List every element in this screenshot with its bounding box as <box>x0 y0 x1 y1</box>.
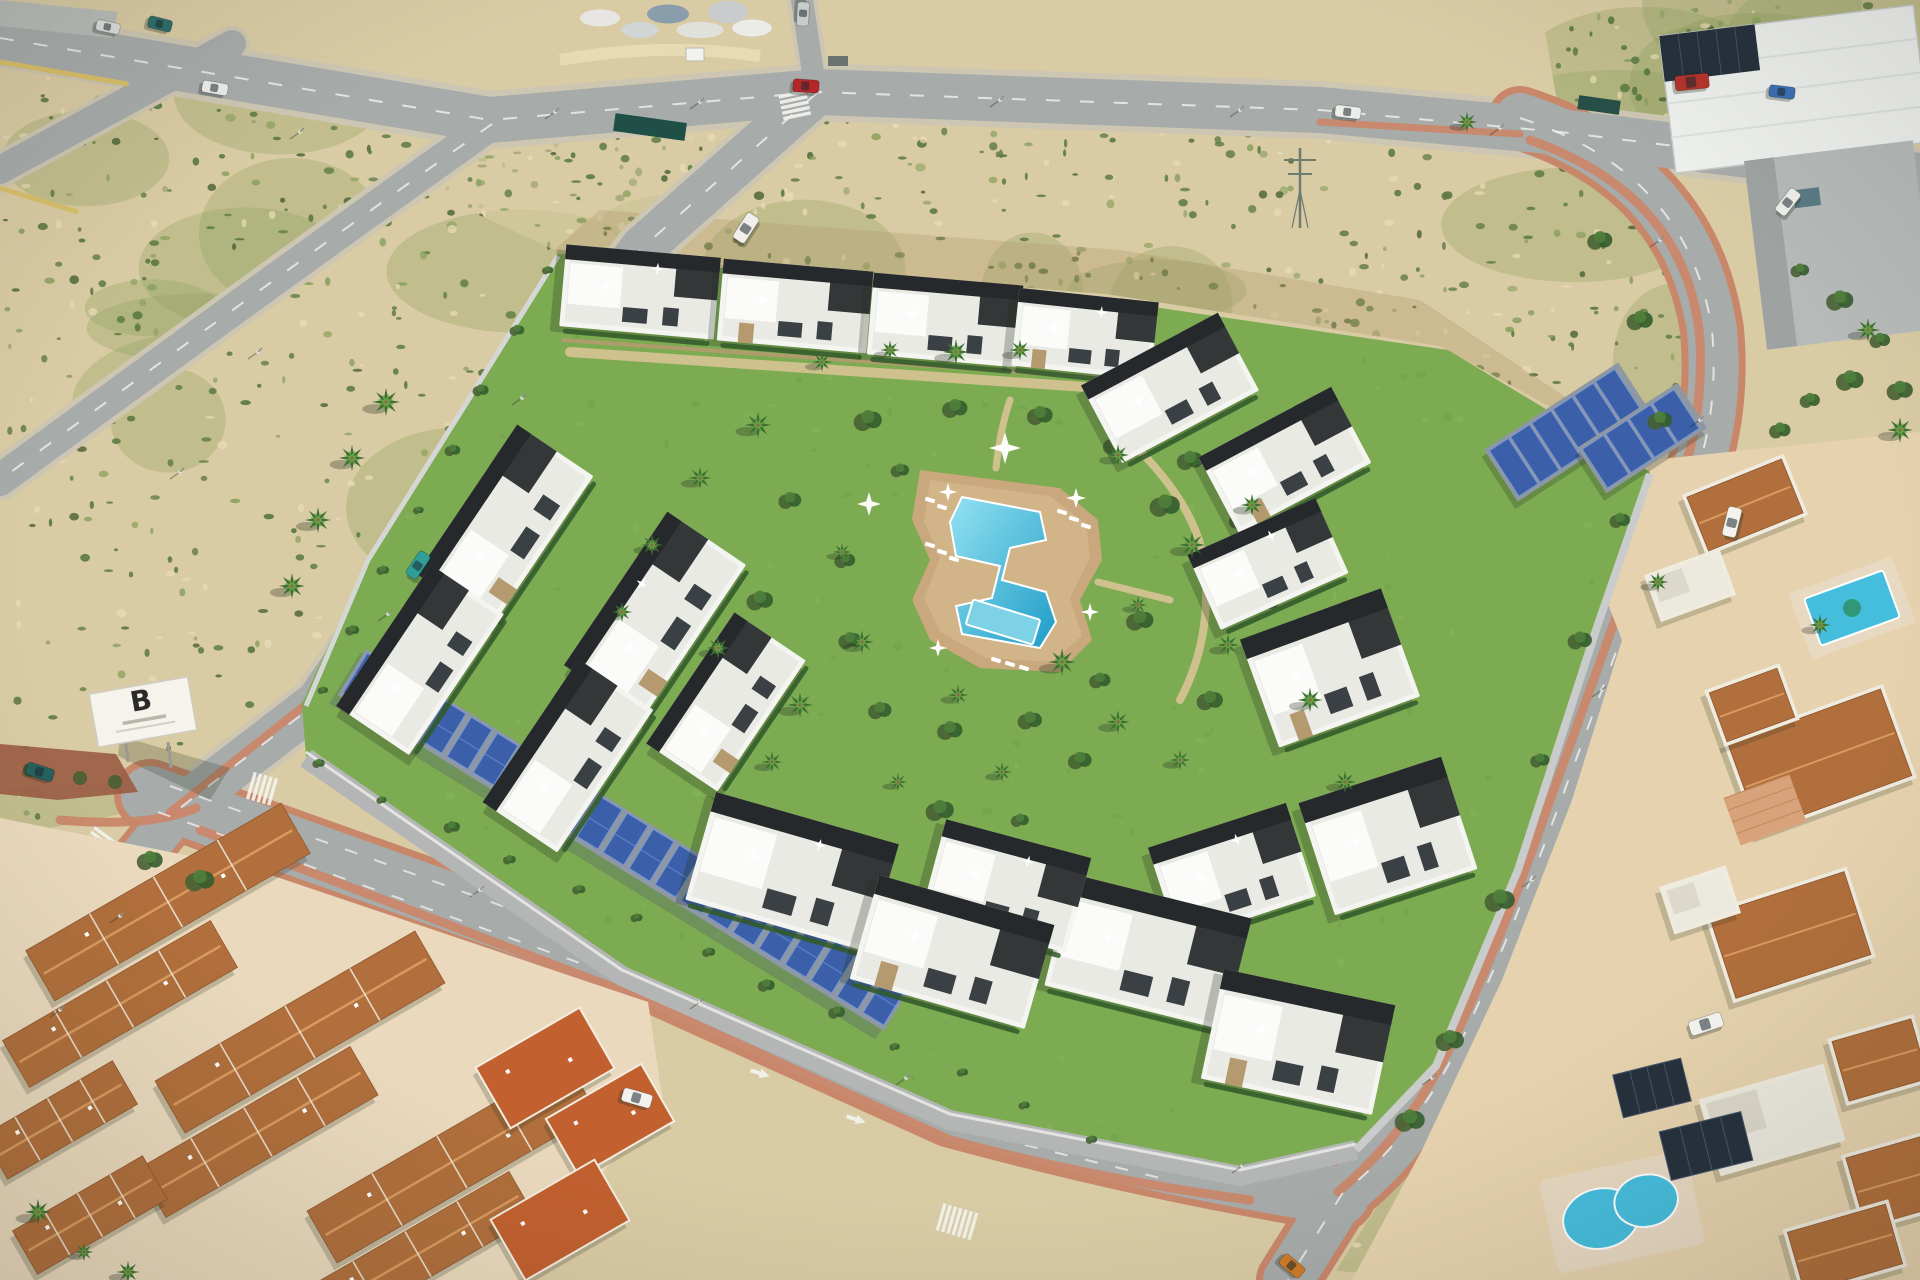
vignette <box>0 0 1920 1280</box>
aerial-scene: B <box>0 0 1920 1280</box>
aerial-photo: B <box>0 0 1920 1280</box>
